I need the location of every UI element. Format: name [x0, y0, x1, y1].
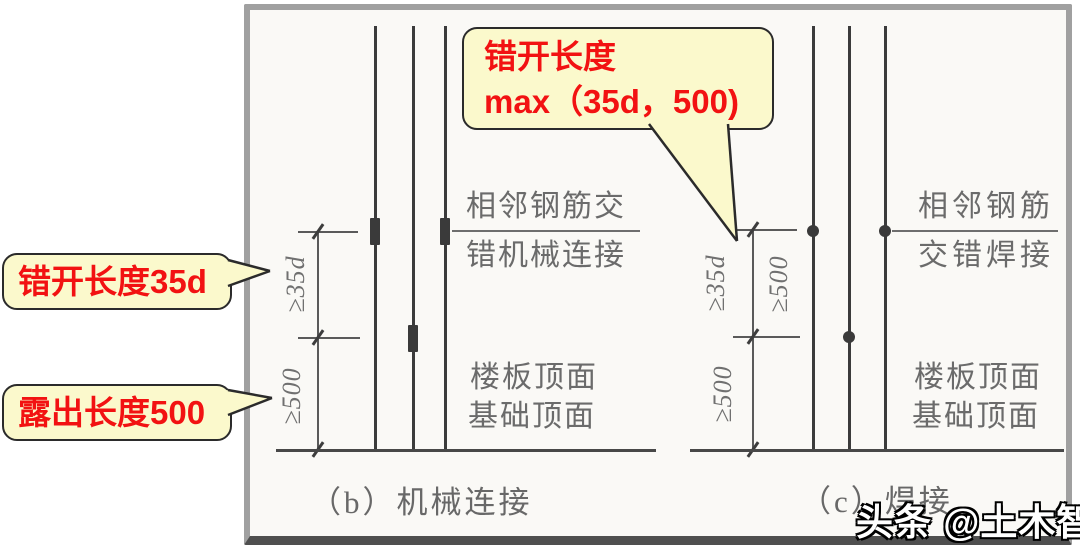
callout-stagger-max: 错开长度 max（35d，500) [462, 27, 774, 130]
surface-label-line2: 基础顶面 [912, 402, 1040, 432]
surface-label-line2: 基础顶面 [468, 402, 596, 432]
callout-stagger-35d-text: 错开长度35d [18, 259, 207, 304]
foundation-top-line [276, 449, 656, 452]
surface-label-line1: 楼板顶面 [470, 363, 598, 393]
exposed-dimension-label: ≥500 [709, 334, 737, 454]
rebar-line [812, 26, 815, 451]
callout-exposed-500: 露出长度500 [2, 384, 232, 441]
stagger-dimension-label: ≥35d [282, 224, 310, 344]
joint-leader-line [452, 230, 640, 232]
mechanical-coupler [370, 218, 380, 245]
rebar-line [884, 26, 887, 451]
foundation-top-line [690, 449, 1064, 452]
callout-stagger-max-line1: 错开长度 [484, 34, 772, 79]
surface-label-line1: 楼板顶面 [914, 363, 1042, 393]
stagger-alt-dimension-label: ≥500 [765, 224, 793, 344]
stagger-dimension-label: ≥35d [702, 223, 730, 343]
rebar-line [412, 26, 415, 451]
figure-canvas: ≥35d ≥500 相邻钢筋交 错机械连接 楼板顶面 基础顶面 （b）机械连接 … [0, 0, 1080, 546]
callout-stagger-max-line2: max（35d，500) [484, 79, 772, 124]
joint-label-line1: 相邻钢筋交 [466, 192, 626, 222]
weld-joint-dot [879, 225, 891, 237]
panel-b-caption: （b）机械连接 [310, 487, 533, 518]
rebar-line [848, 26, 851, 451]
mechanical-coupler [408, 325, 418, 352]
joint-label-line2: 交错焊接 [918, 241, 1054, 271]
mechanical-coupler [440, 218, 450, 245]
weld-joint-dot [807, 225, 819, 237]
weld-joint-dot [843, 331, 855, 343]
callout-exposed-500-text: 露出长度500 [18, 390, 205, 435]
joint-label-line2: 错机械连接 [466, 241, 626, 271]
joint-label-line1: 相邻钢筋 [918, 192, 1054, 222]
watermark-text: 头条 @土木智库 [856, 492, 1080, 546]
exposed-dimension-label: ≥500 [278, 336, 306, 456]
callout-stagger-35d: 错开长度35d [2, 253, 232, 310]
joint-leader-line [892, 230, 1058, 232]
